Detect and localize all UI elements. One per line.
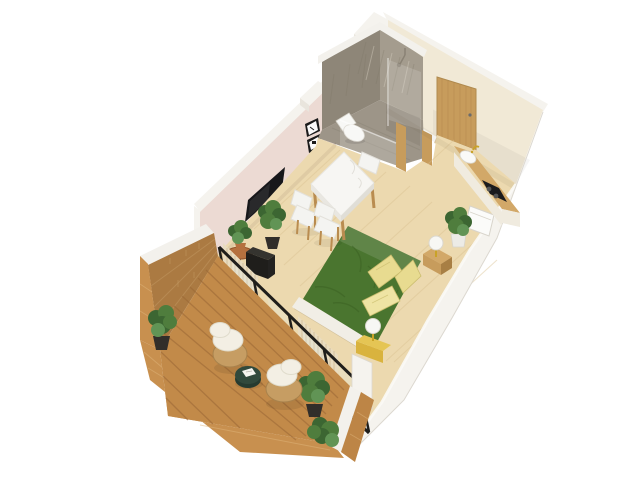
apartment-render-canvas: 3D Isometric Studio Apartment Floor Plan… xyxy=(0,0,640,480)
wicker-armchair-2: Wicker armchair with white cushions xyxy=(266,360,304,411)
door-handle xyxy=(468,113,471,116)
bathroom-se-edge xyxy=(423,57,433,133)
sphere-lamp-south xyxy=(366,319,381,334)
floor-plan-3d-render: 3D Isometric Studio Apartment Floor Plan… xyxy=(0,0,640,480)
bathroom-door-jamb-a xyxy=(396,122,406,172)
sphere-lamp-north xyxy=(429,236,443,250)
